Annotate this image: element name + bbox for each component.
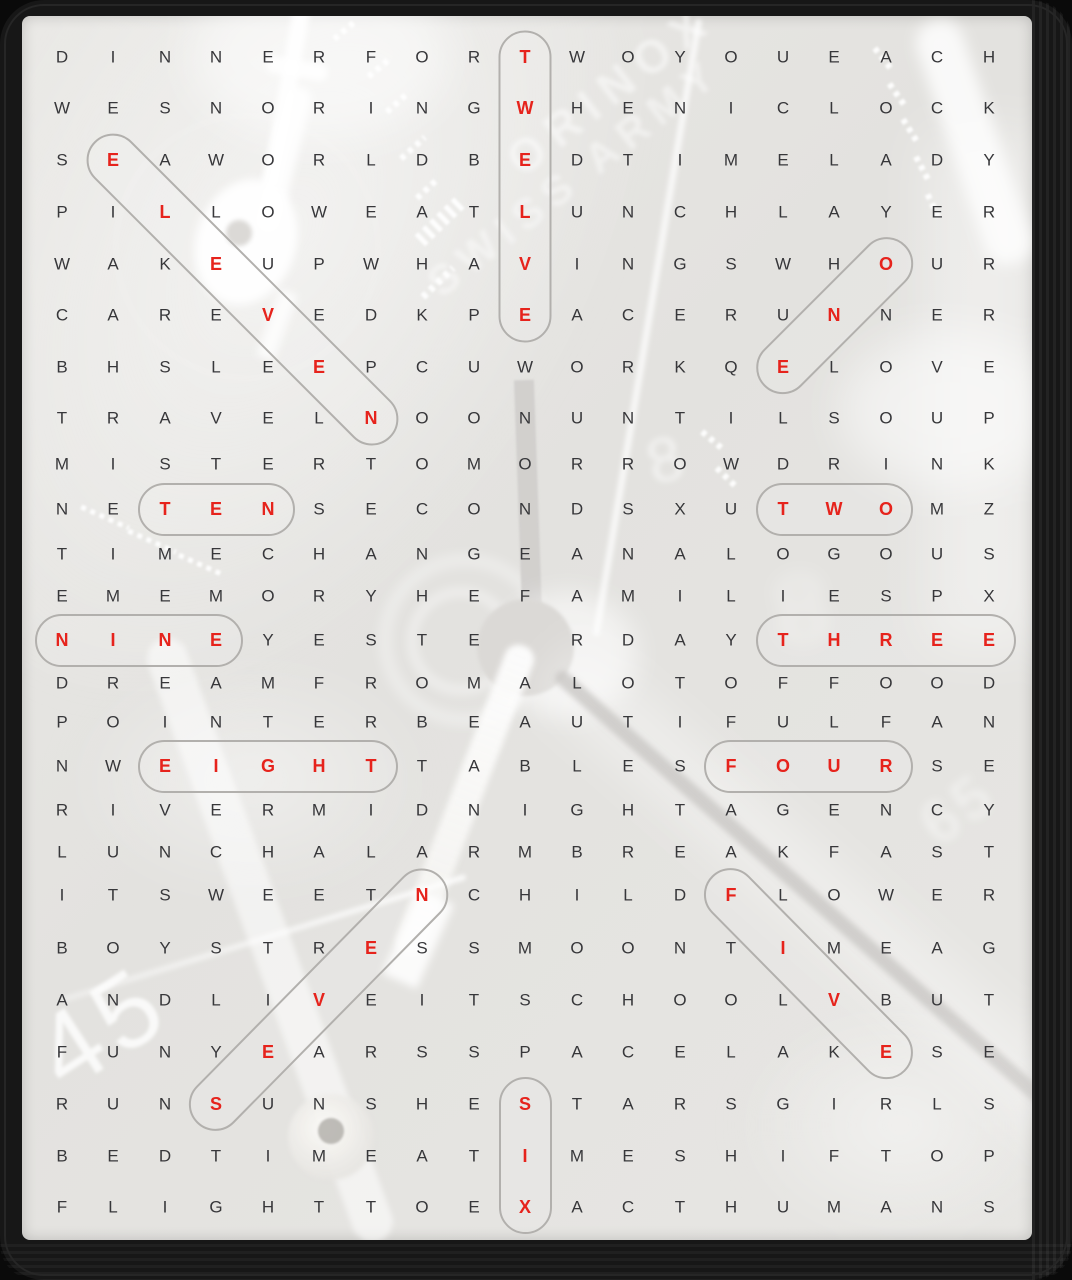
- grid-letter[interactable]: I: [523, 802, 528, 819]
- grid-letter[interactable]: T: [726, 940, 736, 957]
- grid-letter[interactable]: L: [160, 203, 171, 221]
- grid-letter[interactable]: E: [210, 500, 222, 518]
- grid-letter[interactable]: D: [571, 501, 583, 518]
- grid-letter[interactable]: N: [210, 100, 222, 117]
- grid-letter[interactable]: E: [365, 501, 376, 518]
- grid-letter[interactable]: S: [468, 940, 479, 957]
- grid-letter[interactable]: V: [931, 359, 942, 376]
- grid-letter[interactable]: S: [159, 359, 170, 376]
- grid-letter[interactable]: E: [931, 307, 942, 324]
- grid-letter[interactable]: D: [931, 152, 943, 169]
- grid-letter[interactable]: A: [571, 1199, 582, 1216]
- grid-letter[interactable]: R: [725, 307, 737, 324]
- grid-letter[interactable]: U: [571, 714, 583, 731]
- grid-letter[interactable]: A: [674, 546, 685, 563]
- grid-letter[interactable]: R: [880, 757, 893, 775]
- grid-letter[interactable]: N: [210, 714, 222, 731]
- grid-letter[interactable]: T: [778, 631, 789, 649]
- grid-letter[interactable]: H: [828, 631, 841, 649]
- grid-letter[interactable]: E: [468, 1199, 479, 1216]
- grid-letter[interactable]: S: [828, 410, 839, 427]
- grid-letter[interactable]: S: [468, 1044, 479, 1061]
- grid-letter[interactable]: V: [313, 991, 325, 1009]
- grid-letter[interactable]: U: [107, 1096, 119, 1113]
- grid-letter[interactable]: L: [211, 992, 220, 1009]
- grid-letter[interactable]: C: [210, 844, 222, 861]
- grid-letter[interactable]: L: [778, 204, 787, 221]
- grid-letter[interactable]: N: [622, 204, 634, 221]
- grid-letter[interactable]: I: [420, 992, 425, 1009]
- grid-letter[interactable]: A: [880, 1199, 891, 1216]
- grid-letter[interactable]: O: [930, 675, 943, 692]
- grid-letter[interactable]: S: [313, 501, 324, 518]
- grid-letter[interactable]: R: [365, 714, 377, 731]
- grid-letter[interactable]: O: [570, 940, 583, 957]
- grid-letter[interactable]: O: [879, 500, 893, 518]
- grid-letter[interactable]: A: [674, 632, 685, 649]
- grid-letter[interactable]: H: [983, 49, 995, 66]
- grid-letter[interactable]: S: [983, 1199, 994, 1216]
- grid-letter[interactable]: E: [983, 758, 994, 775]
- grid-letter[interactable]: O: [415, 49, 428, 66]
- grid-letter[interactable]: M: [570, 1148, 584, 1165]
- grid-letter[interactable]: N: [519, 410, 531, 427]
- grid-letter[interactable]: C: [931, 100, 943, 117]
- grid-letter[interactable]: E: [262, 49, 273, 66]
- grid-letter[interactable]: T: [417, 632, 427, 649]
- grid-letter[interactable]: U: [107, 1044, 119, 1061]
- grid-letter[interactable]: E: [210, 631, 222, 649]
- grid-letter[interactable]: N: [365, 409, 378, 427]
- grid-letter[interactable]: U: [725, 501, 737, 518]
- grid-letter[interactable]: T: [572, 1096, 582, 1113]
- grid-letter[interactable]: X: [674, 501, 685, 518]
- grid-letter[interactable]: R: [107, 410, 119, 427]
- grid-letter[interactable]: I: [163, 714, 168, 731]
- grid-letter[interactable]: A: [159, 410, 170, 427]
- grid-letter[interactable]: I: [213, 757, 218, 775]
- grid-letter[interactable]: R: [983, 256, 995, 273]
- grid-letter[interactable]: B: [56, 940, 67, 957]
- grid-letter[interactable]: R: [468, 49, 480, 66]
- grid-letter[interactable]: I: [266, 992, 271, 1009]
- grid-letter[interactable]: I: [884, 456, 889, 473]
- grid-letter[interactable]: O: [724, 992, 737, 1009]
- grid-letter[interactable]: F: [726, 714, 736, 731]
- grid-letter[interactable]: L: [726, 1044, 735, 1061]
- grid-letter[interactable]: G: [467, 546, 480, 563]
- grid-letter[interactable]: T: [520, 48, 531, 66]
- grid-letter[interactable]: N: [416, 886, 429, 904]
- grid-letter[interactable]: E: [262, 359, 273, 376]
- grid-letter[interactable]: E: [159, 675, 170, 692]
- grid-letter[interactable]: T: [417, 758, 427, 775]
- grid-letter[interactable]: W: [311, 204, 327, 221]
- grid-letter[interactable]: S: [519, 992, 530, 1009]
- grid-letter[interactable]: S: [159, 100, 170, 117]
- grid-letter[interactable]: E: [107, 100, 118, 117]
- grid-letter[interactable]: H: [416, 588, 428, 605]
- grid-letter[interactable]: M: [930, 501, 944, 518]
- grid-letter[interactable]: E: [262, 410, 273, 427]
- grid-letter[interactable]: E: [107, 1148, 118, 1165]
- grid-letter[interactable]: W: [878, 887, 894, 904]
- grid-letter[interactable]: I: [781, 588, 786, 605]
- grid-letter[interactable]: M: [467, 675, 481, 692]
- grid-letter[interactable]: Y: [983, 802, 994, 819]
- grid-letter[interactable]: I: [369, 100, 374, 117]
- grid-letter[interactable]: P: [983, 410, 994, 427]
- grid-letter[interactable]: D: [159, 992, 171, 1009]
- grid-letter[interactable]: T: [57, 410, 67, 427]
- grid-letter[interactable]: A: [725, 844, 736, 861]
- grid-letter[interactable]: R: [674, 1096, 686, 1113]
- grid-letter[interactable]: L: [932, 1096, 941, 1113]
- grid-letter[interactable]: K: [159, 256, 170, 273]
- grid-letter[interactable]: T: [57, 546, 67, 563]
- grid-letter[interactable]: O: [106, 714, 119, 731]
- grid-letter[interactable]: H: [622, 992, 634, 1009]
- grid-letter[interactable]: S: [365, 632, 376, 649]
- grid-letter[interactable]: S: [983, 1096, 994, 1113]
- grid-letter[interactable]: E: [210, 307, 221, 324]
- grid-letter[interactable]: H: [262, 1199, 274, 1216]
- grid-letter[interactable]: N: [674, 940, 686, 957]
- grid-letter[interactable]: O: [415, 410, 428, 427]
- grid-letter[interactable]: T: [160, 500, 171, 518]
- grid-letter[interactable]: N: [56, 631, 69, 649]
- grid-letter[interactable]: H: [725, 204, 737, 221]
- grid-letter[interactable]: Y: [210, 1044, 221, 1061]
- grid-letter[interactable]: B: [56, 1148, 67, 1165]
- grid-letter[interactable]: O: [827, 887, 840, 904]
- grid-letter[interactable]: D: [365, 307, 377, 324]
- grid-letter[interactable]: S: [983, 546, 994, 563]
- grid-letter[interactable]: K: [983, 456, 994, 473]
- grid-letter[interactable]: O: [776, 757, 790, 775]
- grid-letter[interactable]: S: [416, 940, 427, 957]
- grid-letter[interactable]: U: [931, 410, 943, 427]
- grid-letter[interactable]: T: [675, 410, 685, 427]
- grid-letter[interactable]: A: [468, 256, 479, 273]
- grid-letter[interactable]: O: [467, 410, 480, 427]
- grid-letter[interactable]: S: [674, 1148, 685, 1165]
- grid-letter[interactable]: D: [571, 152, 583, 169]
- grid-letter[interactable]: A: [107, 307, 118, 324]
- grid-letter[interactable]: E: [365, 1148, 376, 1165]
- grid-letter[interactable]: E: [674, 844, 685, 861]
- grid-letter[interactable]: S: [880, 588, 891, 605]
- grid-letter[interactable]: U: [107, 844, 119, 861]
- grid-letter[interactable]: C: [56, 307, 68, 324]
- grid-letter[interactable]: C: [777, 100, 789, 117]
- grid-letter[interactable]: I: [781, 1148, 786, 1165]
- grid-letter[interactable]: Y: [262, 632, 273, 649]
- grid-letter[interactable]: A: [210, 675, 221, 692]
- grid-letter[interactable]: C: [622, 307, 634, 324]
- grid-letter[interactable]: M: [827, 1199, 841, 1216]
- grid-letter[interactable]: A: [777, 1044, 788, 1061]
- grid-letter[interactable]: E: [777, 152, 788, 169]
- grid-letter[interactable]: P: [313, 256, 324, 273]
- grid-letter[interactable]: D: [159, 1148, 171, 1165]
- grid-letter[interactable]: B: [519, 758, 530, 775]
- grid-letter[interactable]: C: [622, 1044, 634, 1061]
- grid-letter[interactable]: E: [365, 204, 376, 221]
- grid-letter[interactable]: O: [879, 675, 892, 692]
- grid-letter[interactable]: E: [107, 501, 118, 518]
- grid-letter[interactable]: C: [262, 546, 274, 563]
- grid-letter[interactable]: F: [57, 1199, 67, 1216]
- grid-letter[interactable]: E: [880, 1043, 892, 1061]
- grid-letter[interactable]: N: [622, 546, 634, 563]
- grid-letter[interactable]: W: [54, 256, 70, 273]
- grid-letter[interactable]: E: [519, 151, 531, 169]
- grid-letter[interactable]: K: [828, 1044, 839, 1061]
- grid-letter[interactable]: I: [60, 887, 65, 904]
- grid-letter[interactable]: R: [56, 1096, 68, 1113]
- grid-letter[interactable]: Y: [159, 940, 170, 957]
- grid-letter[interactable]: A: [571, 546, 582, 563]
- grid-letter[interactable]: F: [520, 588, 530, 605]
- grid-letter[interactable]: E: [468, 588, 479, 605]
- grid-letter[interactable]: S: [931, 844, 942, 861]
- grid-letter[interactable]: N: [159, 844, 171, 861]
- grid-letter[interactable]: S: [210, 940, 221, 957]
- grid-letter[interactable]: E: [983, 1044, 994, 1061]
- grid-letter[interactable]: R: [313, 588, 325, 605]
- grid-letter[interactable]: T: [469, 1148, 479, 1165]
- grid-letter[interactable]: P: [365, 359, 376, 376]
- grid-letter[interactable]: L: [829, 359, 838, 376]
- grid-letter[interactable]: O: [467, 501, 480, 518]
- grid-letter[interactable]: G: [982, 940, 995, 957]
- grid-letter[interactable]: T: [778, 500, 789, 518]
- grid-letter[interactable]: E: [828, 802, 839, 819]
- grid-letter[interactable]: A: [313, 844, 324, 861]
- grid-letter[interactable]: A: [931, 714, 942, 731]
- grid-letter[interactable]: N: [159, 1044, 171, 1061]
- grid-letter[interactable]: N: [468, 802, 480, 819]
- grid-letter[interactable]: E: [313, 887, 324, 904]
- grid-letter[interactable]: N: [313, 1096, 325, 1113]
- grid-letter[interactable]: S: [56, 152, 67, 169]
- grid-letter[interactable]: V: [159, 802, 170, 819]
- grid-letter[interactable]: T: [881, 1148, 891, 1165]
- grid-letter[interactable]: F: [726, 886, 737, 904]
- grid-letter[interactable]: L: [829, 100, 838, 117]
- grid-letter[interactable]: L: [57, 844, 66, 861]
- grid-letter[interactable]: A: [416, 844, 427, 861]
- grid-letter[interactable]: O: [106, 940, 119, 957]
- grid-letter[interactable]: N: [159, 1096, 171, 1113]
- grid-letter[interactable]: E: [828, 588, 839, 605]
- grid-letter[interactable]: L: [829, 714, 838, 731]
- grid-letter[interactable]: E: [159, 757, 171, 775]
- grid-letter[interactable]: E: [468, 714, 479, 731]
- grid-letter[interactable]: E: [313, 714, 324, 731]
- grid-letter[interactable]: H: [313, 546, 325, 563]
- grid-letter[interactable]: W: [826, 500, 843, 518]
- grid-letter[interactable]: E: [931, 631, 943, 649]
- grid-letter[interactable]: L: [726, 546, 735, 563]
- grid-letter[interactable]: E: [262, 1043, 274, 1061]
- grid-letter[interactable]: R: [313, 152, 325, 169]
- grid-letter[interactable]: O: [261, 204, 274, 221]
- grid-letter[interactable]: I: [678, 714, 683, 731]
- grid-letter[interactable]: G: [570, 802, 583, 819]
- grid-letter[interactable]: A: [519, 714, 530, 731]
- grid-letter[interactable]: H: [725, 1199, 737, 1216]
- grid-letter[interactable]: A: [931, 940, 942, 957]
- grid-letter[interactable]: R: [571, 456, 583, 473]
- grid-letter[interactable]: R: [880, 631, 893, 649]
- grid-letter[interactable]: H: [571, 100, 583, 117]
- grid-letter[interactable]: N: [674, 100, 686, 117]
- grid-letter[interactable]: D: [56, 49, 68, 66]
- grid-letter[interactable]: E: [622, 100, 633, 117]
- grid-letter[interactable]: I: [575, 256, 580, 273]
- grid-letter[interactable]: F: [829, 675, 839, 692]
- grid-letter[interactable]: O: [415, 1199, 428, 1216]
- grid-letter[interactable]: R: [828, 456, 840, 473]
- grid-letter[interactable]: H: [107, 359, 119, 376]
- grid-letter[interactable]: R: [107, 675, 119, 692]
- grid-letter[interactable]: I: [780, 939, 785, 957]
- grid-letter[interactable]: E: [468, 1096, 479, 1113]
- grid-letter[interactable]: E: [931, 204, 942, 221]
- grid-letter[interactable]: L: [829, 152, 838, 169]
- grid-letter[interactable]: R: [571, 632, 583, 649]
- grid-letter[interactable]: S: [725, 1096, 736, 1113]
- grid-letter[interactable]: N: [107, 992, 119, 1009]
- grid-letter[interactable]: U: [468, 359, 480, 376]
- grid-letter[interactable]: N: [519, 501, 531, 518]
- grid-letter[interactable]: U: [262, 256, 274, 273]
- grid-letter[interactable]: L: [211, 204, 220, 221]
- grid-letter[interactable]: O: [570, 359, 583, 376]
- grid-letter[interactable]: P: [56, 714, 67, 731]
- grid-letter[interactable]: S: [159, 887, 170, 904]
- grid-letter[interactable]: C: [468, 887, 480, 904]
- grid-letter[interactable]: M: [518, 940, 532, 957]
- grid-letter[interactable]: W: [775, 256, 791, 273]
- grid-letter[interactable]: L: [726, 588, 735, 605]
- grid-letter[interactable]: Y: [365, 588, 376, 605]
- grid-letter[interactable]: R: [365, 675, 377, 692]
- grid-letter[interactable]: E: [313, 358, 325, 376]
- grid-letter[interactable]: C: [931, 49, 943, 66]
- grid-letter[interactable]: L: [778, 992, 787, 1009]
- grid-letter[interactable]: E: [262, 887, 273, 904]
- grid-letter[interactable]: U: [931, 992, 943, 1009]
- grid-letter[interactable]: N: [210, 49, 222, 66]
- grid-letter[interactable]: I: [678, 152, 683, 169]
- grid-letter[interactable]: R: [159, 307, 171, 324]
- grid-letter[interactable]: N: [56, 758, 68, 775]
- grid-letter[interactable]: A: [416, 1148, 427, 1165]
- grid-letter[interactable]: M: [312, 1148, 326, 1165]
- grid-letter[interactable]: S: [931, 758, 942, 775]
- grid-letter[interactable]: T: [314, 1199, 324, 1216]
- grid-letter[interactable]: B: [571, 844, 582, 861]
- grid-letter[interactable]: S: [622, 501, 633, 518]
- grid-letter[interactable]: E: [313, 632, 324, 649]
- grid-letter[interactable]: L: [572, 758, 581, 775]
- grid-letter[interactable]: M: [158, 546, 172, 563]
- grid-letter[interactable]: O: [879, 410, 892, 427]
- grid-letter[interactable]: R: [622, 456, 634, 473]
- grid-letter[interactable]: S: [159, 456, 170, 473]
- grid-letter[interactable]: M: [827, 940, 841, 957]
- grid-letter[interactable]: C: [416, 501, 428, 518]
- grid-letter[interactable]: V: [828, 991, 840, 1009]
- grid-letter[interactable]: A: [880, 152, 891, 169]
- grid-letter[interactable]: T: [366, 887, 376, 904]
- grid-letter[interactable]: S: [674, 758, 685, 775]
- grid-letter[interactable]: M: [724, 152, 738, 169]
- grid-letter[interactable]: L: [366, 152, 375, 169]
- grid-letter[interactable]: A: [159, 152, 170, 169]
- grid-letter[interactable]: T: [984, 844, 994, 861]
- grid-letter[interactable]: B: [468, 152, 479, 169]
- grid-letter[interactable]: F: [881, 714, 891, 731]
- grid-letter[interactable]: F: [829, 1148, 839, 1165]
- grid-letter[interactable]: T: [675, 675, 685, 692]
- grid-letter[interactable]: O: [930, 1148, 943, 1165]
- grid-letter[interactable]: C: [571, 992, 583, 1009]
- grid-letter[interactable]: O: [673, 456, 686, 473]
- grid-letter[interactable]: A: [365, 546, 376, 563]
- grid-letter[interactable]: O: [261, 588, 274, 605]
- grid-letter[interactable]: R: [622, 844, 634, 861]
- grid-letter[interactable]: O: [261, 100, 274, 117]
- grid-letter[interactable]: R: [262, 802, 274, 819]
- grid-letter[interactable]: R: [365, 1044, 377, 1061]
- grid-letter[interactable]: O: [415, 456, 428, 473]
- grid-letter[interactable]: N: [931, 456, 943, 473]
- grid-letter[interactable]: T: [623, 152, 633, 169]
- grid-letter[interactable]: I: [369, 802, 374, 819]
- grid-letter[interactable]: E: [210, 255, 222, 273]
- grid-letter[interactable]: O: [724, 675, 737, 692]
- grid-letter[interactable]: G: [467, 100, 480, 117]
- grid-letter[interactable]: C: [931, 802, 943, 819]
- grid-letter[interactable]: D: [416, 152, 428, 169]
- grid-letter[interactable]: H: [416, 1096, 428, 1113]
- grid-letter[interactable]: E: [210, 802, 221, 819]
- grid-letter[interactable]: A: [571, 307, 582, 324]
- grid-letter[interactable]: O: [879, 546, 892, 563]
- grid-letter[interactable]: W: [569, 49, 585, 66]
- grid-letter[interactable]: T: [623, 714, 633, 731]
- grid-letter[interactable]: D: [56, 675, 68, 692]
- grid-letter[interactable]: K: [777, 844, 788, 861]
- grid-letter[interactable]: P: [56, 204, 67, 221]
- grid-letter[interactable]: F: [57, 1044, 67, 1061]
- grid-letter[interactable]: A: [416, 204, 427, 221]
- grid-letter[interactable]: A: [828, 204, 839, 221]
- grid-letter[interactable]: P: [983, 1148, 994, 1165]
- grid-letter[interactable]: L: [623, 887, 632, 904]
- grid-letter[interactable]: A: [519, 675, 530, 692]
- grid-letter[interactable]: L: [520, 203, 531, 221]
- grid-letter[interactable]: X: [983, 588, 994, 605]
- grid-letter[interactable]: Y: [880, 204, 891, 221]
- grid-letter[interactable]: I: [522, 1147, 527, 1165]
- grid-letter[interactable]: Y: [725, 632, 736, 649]
- grid-letter[interactable]: I: [111, 546, 116, 563]
